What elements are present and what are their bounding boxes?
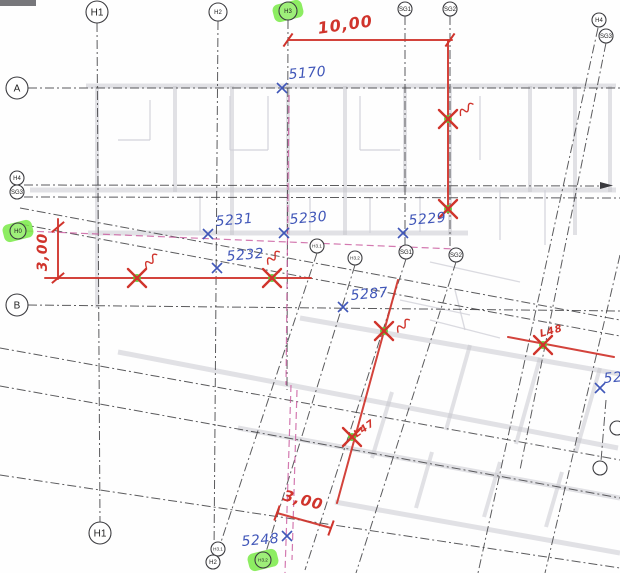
grid-bubble-label: SG1 <box>399 7 412 13</box>
grid-bubble-label: H2 <box>209 560 217 566</box>
handwritten-note <box>142 253 159 268</box>
dimension-text: 10,00 <box>316 11 374 38</box>
grid-bubble-label: H0 <box>14 229 22 235</box>
point-label: 5230 <box>289 209 328 228</box>
point-label: 5248 <box>241 531 280 550</box>
grid-line-magenta <box>285 385 291 573</box>
blue-x-marker <box>212 263 222 273</box>
grid-bubble-label: SG2 <box>444 7 457 13</box>
plan-partition <box>430 262 520 282</box>
point-label: 5170 <box>288 64 327 83</box>
point-label: 5229 <box>408 210 447 229</box>
dimension-text: 3,00 <box>35 233 51 272</box>
grid-bubble-label: H1 <box>94 529 107 540</box>
grid-line <box>520 43 606 470</box>
dimension-line <box>277 513 331 528</box>
dimension-text: 3,00 <box>281 486 325 513</box>
grid-bubble-label: H2 <box>214 10 222 16</box>
dimension-line <box>508 337 614 357</box>
grid-line <box>28 305 620 311</box>
plan-partition <box>455 290 465 330</box>
red-annotations: 10,003,003,00L48L47 <box>35 11 614 535</box>
grid-bubble-label: B <box>14 301 21 312</box>
handwritten-note <box>395 318 412 332</box>
handwritten-note <box>458 102 475 115</box>
scanned-floor-plan: 10,003,003,00L48L47517052315230522952325… <box>0 0 620 573</box>
dimension-line <box>337 280 398 503</box>
grid-bubble-label: H3.2 <box>258 558 268 563</box>
grid-line <box>601 400 606 461</box>
floor-plan-svg: 10,003,003,00L48L47517052315230522952325… <box>0 0 620 573</box>
grid-line-magenta <box>292 390 297 560</box>
grid-bubble-label: SG3 <box>600 34 613 40</box>
plan-wall <box>576 368 600 452</box>
plan-wall <box>335 502 620 553</box>
grid-bubble <box>610 421 620 435</box>
plan-wall <box>118 352 618 448</box>
grid-bubble-label: H3.1 <box>213 547 223 552</box>
grid-line <box>214 21 218 555</box>
grid-bubble-label: SG1 <box>400 250 413 256</box>
point-label: 5232 <box>226 246 265 265</box>
grid-bubble-label: H4 <box>595 18 603 24</box>
handwritten-note <box>265 250 282 264</box>
grid-bubble-label: H1 <box>91 8 104 19</box>
point-labels: 517052315230522952325287524852 <box>203 64 620 550</box>
point-label: 52 <box>603 369 620 387</box>
point-label: 5231 <box>215 211 254 230</box>
plan-wall <box>300 318 620 374</box>
grid-line <box>24 197 620 198</box>
grid-bubble-label: SG3 <box>11 190 24 196</box>
grid-bubble-label: A <box>14 84 21 95</box>
plan-wall <box>546 472 562 527</box>
grid-bubble-label: H3.1 <box>312 244 322 249</box>
point-label: 5287 <box>350 285 389 304</box>
blue-x-marker <box>282 531 292 541</box>
grid-bubble <box>593 461 607 475</box>
grid-line <box>545 255 620 573</box>
grid-bubble-label: H4 <box>13 176 21 182</box>
plan-walls <box>30 86 620 553</box>
grid-lines <box>0 16 620 573</box>
grid-bubble-label: H3 <box>284 9 292 15</box>
grid-bubble-label: H3.2 <box>350 256 360 261</box>
grid-bubble-label: SG2 <box>450 253 463 259</box>
grid-line <box>24 185 605 186</box>
plan-wall <box>484 462 500 517</box>
scan-artifact <box>0 0 36 6</box>
